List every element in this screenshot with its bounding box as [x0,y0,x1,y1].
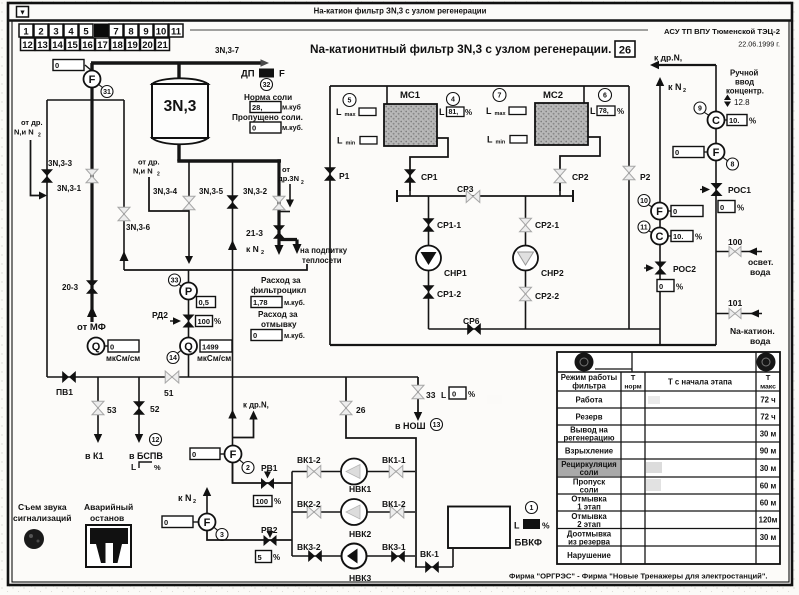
svg-text:N,и N: N,и N [14,128,34,137]
svg-text:3N,3-4: 3N,3-4 [153,187,178,196]
svg-text:Съем звука: Съем звука [18,502,67,512]
svg-text:21: 21 [157,40,168,51]
svg-text:51: 51 [164,388,174,398]
svg-text:отмывку: отмывку [261,320,297,329]
svg-text:2: 2 [157,172,160,178]
svg-text:РОС2: РОС2 [673,264,696,274]
svg-text:3N,3-6: 3N,3-6 [126,223,151,232]
svg-text:от др.: от др. [138,158,160,167]
svg-text:ВК-1: ВК-1 [420,549,439,559]
svg-text:БВКФ: БВКФ [515,538,542,549]
svg-text:14: 14 [169,355,177,362]
svg-text:%: % [617,107,624,116]
svg-text:ВК1-2: ВК1-2 [382,499,406,509]
svg-text:L: L [441,390,446,400]
svg-text:СР1: СР1 [421,172,438,182]
svg-text:30 м: 30 м [760,429,777,438]
svg-text:2 этап: 2 этап [577,520,601,529]
svg-text:0: 0 [110,343,114,352]
svg-text:28,: 28, [252,103,262,112]
svg-text:3N,3: 3N,3 [164,98,197,115]
svg-text:МС2: МС2 [543,90,563,101]
svg-text:4: 4 [68,27,74,38]
svg-text:33: 33 [171,277,179,284]
svg-text:10.: 10. [673,232,683,241]
svg-text:10: 10 [640,198,648,205]
svg-text:2: 2 [301,180,304,186]
svg-text:max: max [345,112,357,118]
svg-text:соли: соли [580,468,599,477]
svg-text:22.06.1999 г.: 22.06.1999 г. [738,40,780,49]
svg-text:13: 13 [37,40,48,51]
svg-text:3N,3-5: 3N,3-5 [199,187,224,196]
svg-text:3N,3-2: 3N,3-2 [243,187,268,196]
svg-text:L: L [487,135,493,145]
svg-text:Т: Т [631,373,636,382]
svg-text:2: 2 [38,133,41,139]
svg-text:к N: к N [246,244,259,254]
svg-text:81,: 81, [449,109,459,116]
svg-text:N,и N: N,и N [133,167,153,176]
svg-text:33: 33 [426,390,436,400]
svg-text:СР3: СР3 [457,184,474,194]
svg-text:СР6: СР6 [463,316,480,326]
svg-text:F: F [656,206,663,218]
svg-text:60 м: 60 м [760,481,777,490]
svg-text:%: % [214,317,221,326]
svg-text:к др.N,: к др.N, [243,401,269,410]
svg-text:РОС1: РОС1 [728,185,751,195]
svg-text:%: % [273,553,280,562]
svg-text:L: L [336,107,342,117]
svg-text:L: L [590,106,596,116]
svg-text:0: 0 [452,390,456,399]
svg-text:%: % [695,233,702,242]
svg-text:14: 14 [52,40,63,51]
svg-text:5: 5 [83,27,89,38]
svg-text:8: 8 [731,161,735,168]
svg-text:100: 100 [256,497,269,506]
svg-text:АСУ ТП ВПУ Тюменской ТЭЦ-2: АСУ ТП ВПУ Тюменской ТЭЦ-2 [664,27,780,36]
svg-text:НВК3: НВК3 [349,573,371,583]
svg-text:F: F [89,74,96,86]
svg-text:6: 6 [603,92,607,99]
svg-text:к N: к N [178,493,192,503]
svg-text:10.: 10. [729,116,739,125]
svg-text:26: 26 [619,45,631,57]
svg-text:фильтроцикл: фильтроцикл [251,286,306,295]
svg-text:13: 13 [433,422,441,429]
svg-text:из резерва: из резерва [568,537,610,546]
svg-text:30 м: 30 м [760,533,777,542]
svg-text:1 этап: 1 этап [577,503,601,512]
svg-text:МС1: МС1 [400,90,421,101]
svg-text:0: 0 [675,148,679,157]
svg-text:освет.: освет. [748,257,773,267]
svg-text:100: 100 [728,237,742,247]
svg-text:%: % [676,283,683,292]
svg-text:0: 0 [720,203,724,212]
svg-text:%: % [468,390,475,399]
svg-text:соли: соли [580,486,599,495]
svg-text:31: 31 [103,89,111,96]
svg-text:101: 101 [728,298,742,308]
svg-text:C: C [656,231,664,243]
svg-text:L: L [514,521,520,531]
svg-text:2: 2 [246,465,250,472]
svg-text:Расход за: Расход за [258,310,298,319]
svg-text:СР1-1: СР1-1 [437,220,461,230]
svg-text:Nа-катион.: Nа-катион. [730,326,775,336]
svg-text:%: % [154,463,161,472]
svg-text:м.куб.: м.куб. [282,124,303,132]
svg-text:3: 3 [220,532,224,539]
svg-text:2: 2 [38,27,43,38]
svg-text:120м: 120м [759,516,778,525]
svg-text:F: F [279,69,285,80]
svg-text:0: 0 [164,518,168,527]
svg-text:17: 17 [97,40,108,51]
svg-text:фильтра: фильтра [572,382,606,391]
svg-text:вода: вода [750,336,771,346]
svg-text:Работа: Работа [576,395,604,404]
svg-text:min: min [346,141,356,147]
svg-text:0: 0 [253,331,257,340]
svg-text:7: 7 [113,27,118,38]
svg-text:100: 100 [198,317,211,326]
svg-text:9: 9 [143,27,148,38]
svg-text:2: 2 [261,250,264,256]
svg-text:53: 53 [107,405,117,415]
svg-text:max: max [495,111,507,117]
svg-text:останов: останов [90,513,124,523]
svg-text:вода: вода [750,267,771,277]
svg-text:РД2: РД2 [152,310,168,320]
svg-text:32: 32 [263,82,271,89]
svg-text:Норма соли: Норма соли [244,93,292,102]
svg-text:1: 1 [23,27,29,38]
svg-text:ДП: ДП [241,69,255,80]
svg-text:норм: норм [624,384,641,391]
svg-text:м.куб: м.куб [282,104,302,112]
svg-text:в БСПВ: в БСПВ [129,451,163,461]
svg-text:F: F [204,517,211,529]
svg-text:0: 0 [659,282,663,291]
svg-text:мкСм/см: мкСм/см [197,354,231,363]
svg-text:19: 19 [127,40,138,51]
svg-text:На-катион фильтр ЗN,3 с узлом: На-катион фильтр ЗN,3 с узлом регенераци… [314,7,487,16]
svg-text:78,: 78, [599,108,609,115]
svg-text:др.3N: др.3N [278,174,299,183]
svg-text:2: 2 [683,88,686,94]
svg-text:2: 2 [193,499,196,505]
svg-text:1: 1 [530,505,534,512]
svg-text:min: min [496,140,506,146]
svg-text:11: 11 [171,27,182,38]
svg-text:СР2-2: СР2-2 [535,291,559,301]
svg-text:12: 12 [152,437,160,444]
svg-text:от: от [282,165,290,174]
svg-text:1,78: 1,78 [253,298,268,307]
svg-text:3N,3-7: 3N,3-7 [215,46,240,55]
svg-text:сигнализаций: сигнализаций [13,513,72,523]
svg-text:Фирма "ОРГРЭС" - Фирма "Новые: Фирма "ОРГРЭС" - Фирма "Новые Тренажеры … [509,572,768,581]
svg-text:L: L [486,106,492,116]
svg-text:Пропущено соли.: Пропущено соли. [232,113,303,122]
svg-text:Q: Q [92,341,101,353]
svg-text:3N,3-3: 3N,3-3 [48,159,73,168]
svg-text:10: 10 [156,27,167,38]
svg-text:НВК1: НВК1 [349,484,371,494]
svg-text:ВК2-2: ВК2-2 [297,499,321,509]
svg-text:1499: 1499 [202,343,219,352]
svg-text:60 м: 60 м [760,498,777,507]
svg-text:12: 12 [22,40,33,51]
svg-text:%: % [749,117,756,126]
svg-text:16: 16 [82,40,93,51]
svg-text:20-3: 20-3 [62,283,79,292]
svg-text:18: 18 [112,40,123,51]
svg-text:м.куб.: м.куб. [284,332,305,340]
svg-text:%: % [465,108,472,117]
svg-text:26: 26 [356,405,366,415]
svg-text:15: 15 [67,40,78,51]
svg-text:F: F [713,147,720,159]
svg-text:L: L [439,107,445,117]
svg-text:72 ч: 72 ч [760,412,775,421]
svg-text:20: 20 [142,40,153,51]
svg-text:P1: P1 [339,171,350,181]
svg-text:СНР1: СНР1 [444,268,467,278]
svg-text:L: L [337,136,343,146]
svg-text:в НОШ: в НОШ [395,421,426,431]
svg-text:ВК3-2: ВК3-2 [297,542,321,552]
svg-text:8: 8 [128,27,133,38]
svg-text:СР1-2: СР1-2 [437,289,461,299]
svg-text:Т: Т [766,373,771,382]
svg-text:21-3: 21-3 [246,228,263,238]
svg-text:0: 0 [252,124,256,133]
svg-text:90 м: 90 м [760,446,777,455]
svg-text:Расход за: Расход за [261,276,301,285]
svg-text:5: 5 [348,97,352,104]
svg-text:концентр.: концентр. [726,87,764,96]
svg-text:3N,3-1: 3N,3-1 [57,184,82,193]
svg-text:ВК3-1: ВК3-1 [382,542,406,552]
svg-text:Q: Q [184,341,193,353]
svg-text:регенерацию: регенерацию [563,434,614,443]
svg-text:30 м: 30 м [760,464,777,473]
svg-text:Ручной: Ручной [730,69,759,78]
svg-text:Т с начала этапа: Т с начала этапа [668,378,733,387]
svg-text:0: 0 [55,61,59,70]
svg-text:Резерв: Резерв [575,412,602,421]
svg-text:%: % [542,521,550,531]
svg-text:C: C [712,115,720,127]
svg-text:ВК1-2: ВК1-2 [297,455,321,465]
svg-text:72 ч: 72 ч [760,395,775,404]
svg-text:L: L [131,462,136,472]
svg-text:0: 0 [673,207,677,216]
svg-text:СР2: СР2 [572,172,589,182]
svg-text:P2: P2 [640,172,651,182]
svg-text:СР2-1: СР2-1 [535,220,559,230]
svg-text:%: % [737,204,744,213]
svg-text:ввод: ввод [735,78,754,87]
svg-text:макс: макс [760,384,776,391]
svg-text:0: 0 [192,450,196,459]
svg-text:52: 52 [150,404,160,414]
svg-text:в К1: в К1 [85,451,104,461]
svg-text:СНР2: СНР2 [541,268,564,278]
svg-text:от МФ: от МФ [77,322,106,333]
svg-text:Nа-катионитный фильтр 3N,3 с у: Nа-катионитный фильтр 3N,3 с узлом реген… [310,42,611,56]
svg-text:9: 9 [698,105,702,112]
svg-text:ВК1-1: ВК1-1 [382,455,406,465]
svg-text:НВК2: НВК2 [349,529,371,539]
svg-text:F: F [230,449,237,461]
svg-text:к N: к N [668,82,682,92]
svg-text:м.куб.: м.куб. [284,299,305,307]
svg-text:7: 7 [498,92,502,99]
svg-text:4: 4 [451,96,455,103]
svg-text:Взрыхление: Взрыхление [565,446,614,455]
svg-text:P: P [185,286,192,298]
svg-text:%: % [274,497,281,506]
svg-text:от др.: от др. [21,118,43,127]
svg-text:теплосети: теплосети [302,256,342,265]
svg-text:3: 3 [53,27,58,38]
svg-text:на подпитку: на подпитку [300,246,348,255]
svg-text:мкСм/см: мкСм/см [106,354,140,363]
svg-text:12.8: 12.8 [734,98,750,107]
svg-text:Нарушение: Нарушение [567,551,611,560]
svg-text:к др.N,: к др.N, [654,53,682,63]
svg-text:ПВ1: ПВ1 [56,387,73,397]
svg-text:0,5: 0,5 [199,298,209,307]
svg-text:11: 11 [640,224,648,231]
svg-text:Аварийный: Аварийный [84,502,133,512]
svg-text:5: 5 [258,553,262,562]
